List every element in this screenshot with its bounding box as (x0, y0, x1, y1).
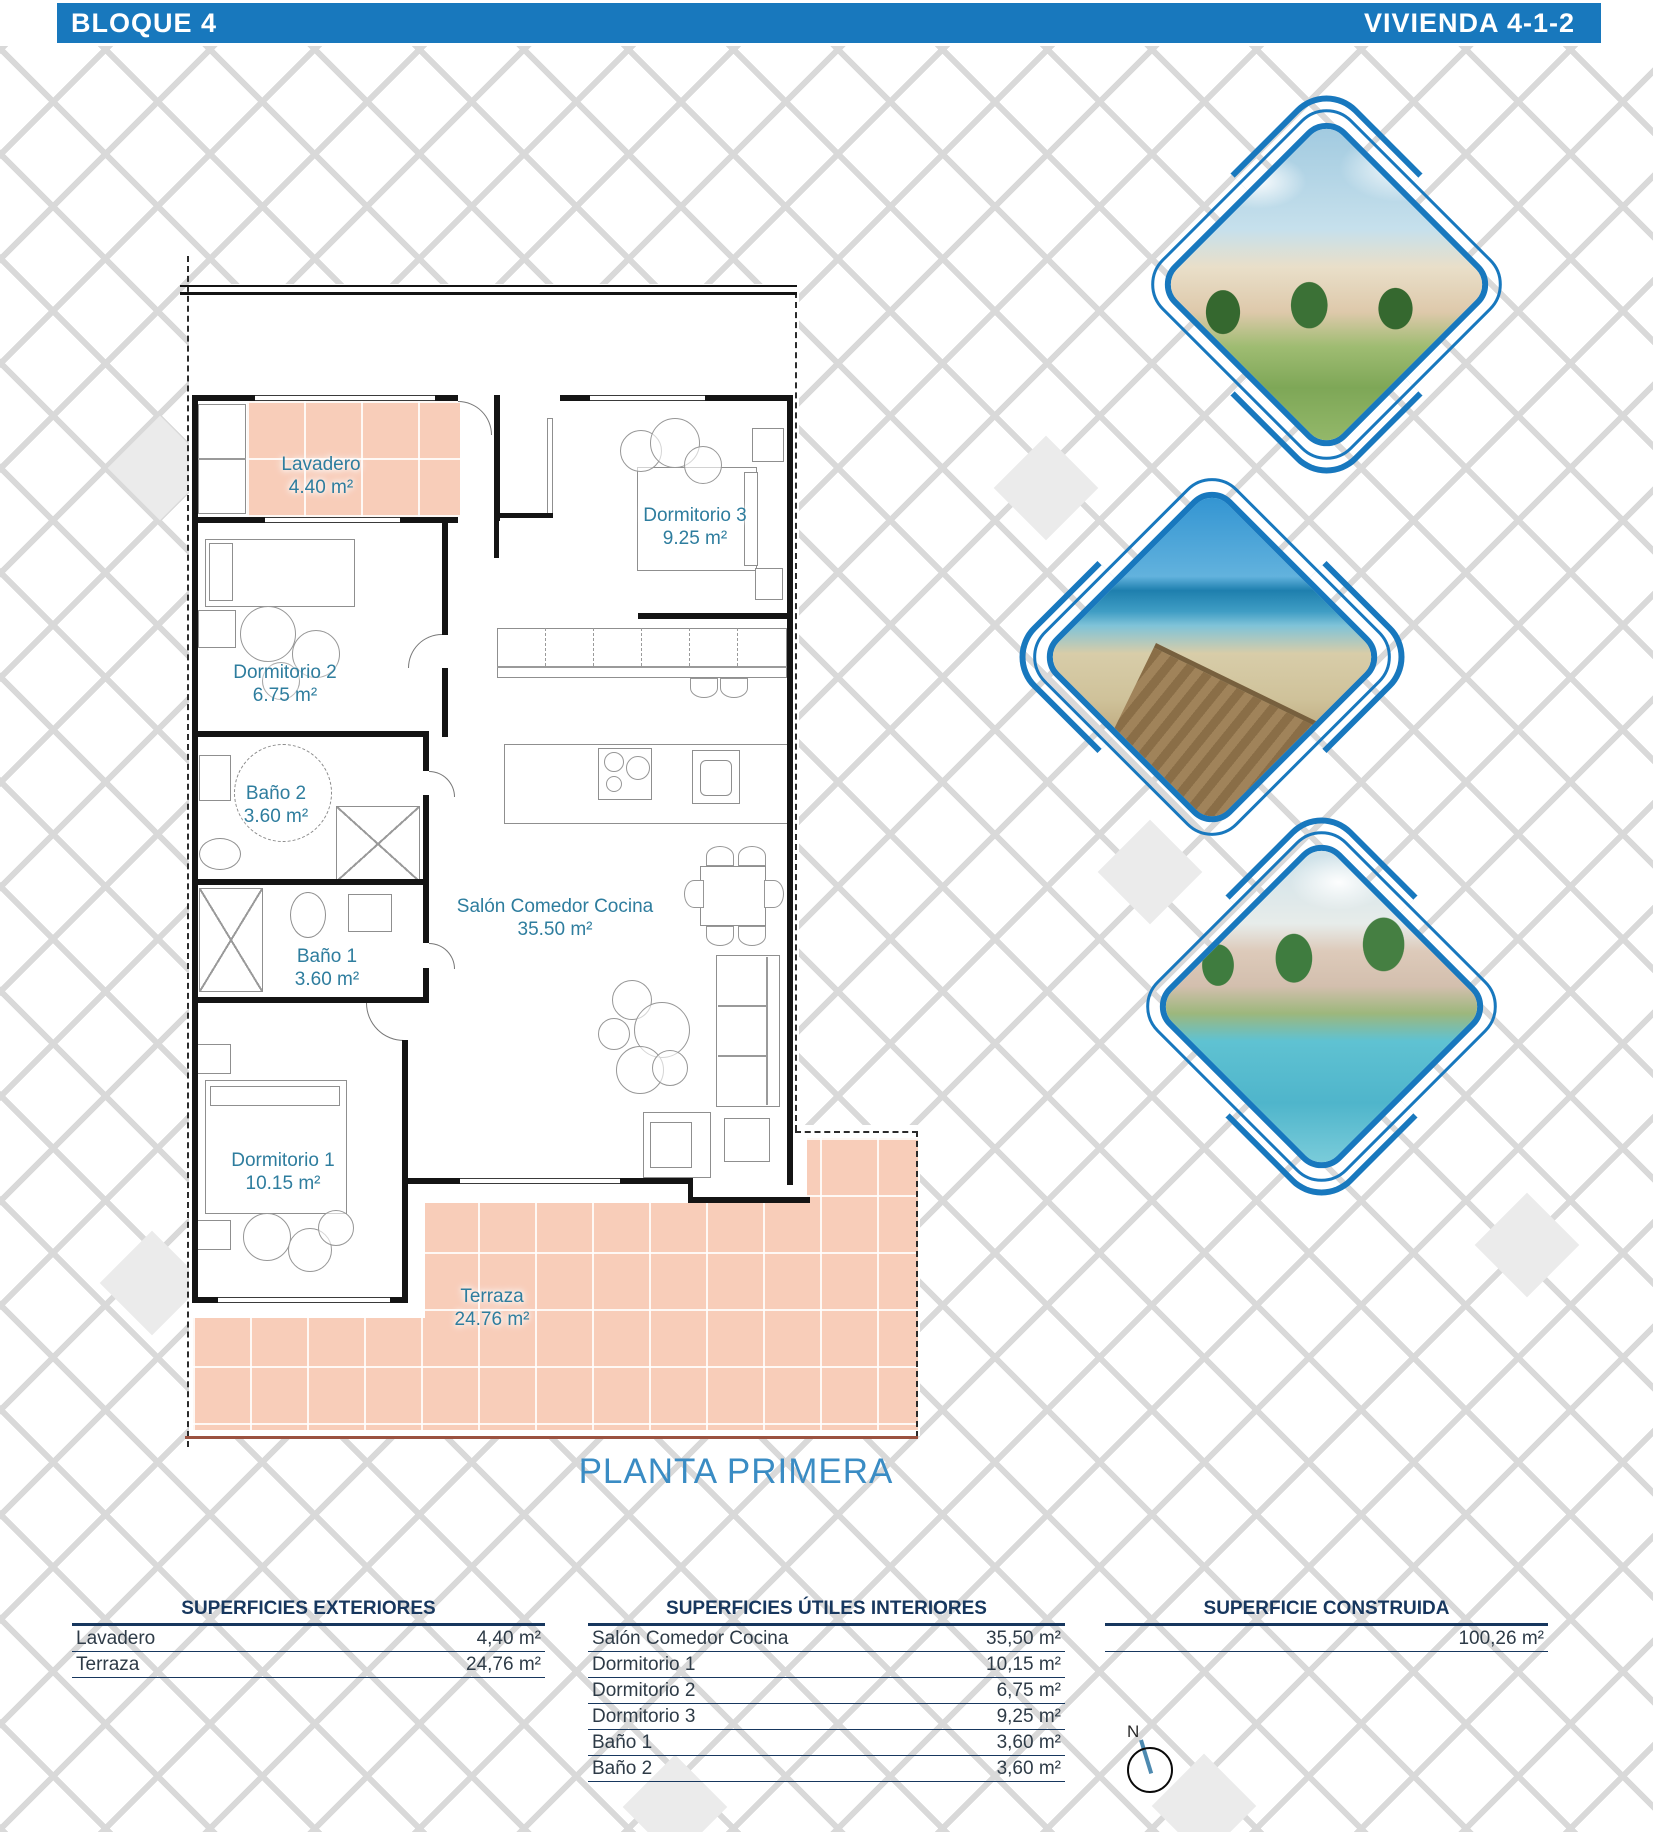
cabinet-divider (737, 628, 738, 666)
hob-burner (604, 752, 624, 772)
armchair (724, 1118, 770, 1162)
sofa (716, 955, 780, 1107)
row-value: 3,60 m² (997, 1732, 1061, 1754)
tv-unit-inner (650, 1122, 692, 1168)
room-name: Baño 2 (244, 782, 308, 805)
table-row: Salón Comedor Cocina 35,50 m² (588, 1626, 1065, 1652)
wall (497, 513, 553, 518)
row-label: Baño 1 (592, 1732, 652, 1754)
row-value: 6,75 m² (997, 1680, 1061, 1702)
room-area: 3.60 m² (244, 805, 308, 828)
wall (180, 292, 797, 295)
kitchen-counter (497, 628, 787, 678)
room-area: 24.76 m² (455, 1308, 530, 1331)
hob-burner (626, 756, 650, 780)
terrace-edge-line (185, 1436, 918, 1439)
room-area: 6.75 m² (233, 684, 336, 707)
room-area: 35.50 m² (457, 918, 653, 941)
room-area: 9.25 m² (643, 527, 746, 550)
furniture-line (766, 957, 768, 1105)
furniture-line (718, 1005, 766, 1007)
chair (243, 1213, 291, 1261)
hob-burner (606, 776, 622, 792)
wall (423, 795, 429, 943)
furniture-line (198, 458, 246, 460)
plant (652, 1050, 688, 1086)
nightstand (752, 428, 784, 462)
room-label-bano1: Baño 1 3.60 m² (295, 945, 359, 991)
room-label-salon: Salón Comedor Cocina 35.50 m² (457, 895, 653, 941)
row-value: 100,26 m² (1458, 1628, 1544, 1650)
block-title: BLOQUE 4 (71, 3, 217, 43)
room-label-terraza: Terraza 24.76 m² (455, 1285, 530, 1331)
window (265, 517, 400, 523)
furniture-line (718, 1055, 766, 1057)
room-name: Salón Comedor Cocina (457, 895, 653, 918)
table-superficies-interiores: SUPERFICIES ÚTILES INTERIORES Salón Come… (588, 1598, 1065, 1782)
table-superficies-exteriores: SUPERFICIES EXTERIORES Lavadero 4,40 m² … (72, 1598, 545, 1678)
row-label: Dormitorio 1 (592, 1654, 695, 1676)
room-name: Dormitorio 1 (231, 1149, 334, 1172)
cabinet-divider (641, 628, 642, 666)
property-line (795, 292, 797, 1131)
wall (787, 395, 793, 1185)
table-row: Baño 1 3,60 m² (588, 1730, 1065, 1756)
shower (199, 888, 263, 992)
nightstand (197, 1220, 231, 1250)
room-name: Baño 1 (295, 945, 359, 968)
table-title: SUPERFICIE CONSTRUIDA (1105, 1598, 1548, 1626)
chair (738, 846, 766, 866)
chair (706, 846, 734, 866)
chair (684, 880, 704, 908)
property-line (916, 1131, 918, 1437)
row-value: 9,25 m² (997, 1706, 1061, 1728)
plan-title: PLANTA PRIMERA (486, 1452, 986, 1492)
property-line (795, 1131, 918, 1133)
window (218, 1297, 390, 1303)
toilet (199, 838, 241, 870)
sink (199, 755, 231, 801)
stool (690, 678, 718, 698)
room-label-lavadero: Lavadero 4.40 m² (281, 453, 360, 499)
wall (192, 879, 429, 885)
wall (638, 613, 788, 619)
wall (192, 395, 198, 523)
desk (198, 610, 236, 648)
closet (547, 418, 553, 518)
wall (494, 395, 500, 521)
wall (192, 997, 429, 1003)
kitchen-sink-basin (700, 760, 732, 796)
room-name: Terraza (455, 1285, 530, 1308)
room-name: Lavadero (281, 453, 360, 476)
window (255, 395, 435, 401)
nightstand (197, 1044, 231, 1074)
table-title: SUPERFICIES EXTERIORES (72, 1598, 545, 1626)
cabinet-divider (593, 628, 594, 666)
furniture-line (497, 666, 787, 668)
chair (240, 606, 296, 662)
row-label: Lavadero (76, 1628, 155, 1650)
shower (336, 806, 420, 882)
header-bar: BLOQUE 4 VIVIENDA 4-1-2 (57, 3, 1601, 43)
cabinet-divider (545, 628, 546, 666)
room-name: Dormitorio 3 (643, 504, 746, 527)
cabinet-divider (689, 628, 690, 666)
unit-title: VIVIENDA 4-1-2 (1364, 3, 1575, 43)
toilet (290, 892, 326, 938)
room-label-bano2: Baño 2 3.60 m² (244, 782, 308, 828)
pillow (209, 543, 233, 601)
row-value: 35,50 m² (986, 1628, 1061, 1650)
brochure-page: BLOQUE 4 VIVIENDA 4-1-2 (0, 0, 1653, 1832)
wall (442, 668, 448, 737)
chair (764, 880, 784, 908)
table-row: Dormitorio 1 10,15 m² (588, 1652, 1065, 1678)
nightstand (755, 568, 783, 600)
property-line (187, 256, 189, 1447)
table-superficie-construida: SUPERFICIE CONSTRUIDA 100,26 m² (1105, 1598, 1548, 1652)
wall (688, 1197, 810, 1203)
row-label: Dormitorio 2 (592, 1680, 695, 1702)
table-row: 100,26 m² (1105, 1626, 1548, 1652)
window (460, 1178, 620, 1184)
sink (348, 894, 392, 932)
table-row: Baño 2 3,60 m² (588, 1756, 1065, 1782)
plant (684, 446, 722, 484)
wall (494, 518, 499, 558)
chair (738, 926, 766, 946)
row-label: Terraza (76, 1654, 139, 1676)
row-label: Salón Comedor Cocina (592, 1628, 788, 1650)
window (590, 395, 705, 401)
wall (423, 731, 429, 771)
room-area: 4.40 m² (281, 476, 360, 499)
wall (402, 1040, 408, 1300)
stool (720, 678, 748, 698)
row-value: 3,60 m² (997, 1758, 1061, 1780)
room-name: Dormitorio 2 (233, 661, 336, 684)
table-row: Dormitorio 2 6,75 m² (588, 1678, 1065, 1704)
room-label-dormitorio2: Dormitorio 2 6.75 m² (233, 661, 336, 707)
compass: N (1115, 1722, 1195, 1806)
chair (706, 926, 734, 946)
row-value: 10,15 m² (986, 1654, 1061, 1676)
wall (180, 285, 797, 287)
plant (598, 1018, 630, 1050)
north-label: N (1127, 1722, 1139, 1742)
room-label-dormitorio1: Dormitorio 1 10.15 m² (231, 1149, 334, 1195)
room-area: 10.15 m² (231, 1172, 334, 1195)
row-label: Dormitorio 3 (592, 1706, 695, 1728)
room-area: 3.60 m² (295, 968, 359, 991)
wall (192, 517, 198, 1303)
table-title: SUPERFICIES ÚTILES INTERIORES (588, 1598, 1065, 1626)
row-label: Baño 2 (592, 1758, 652, 1780)
compass-circle (1127, 1747, 1173, 1793)
table-row: Dormitorio 3 9,25 m² (588, 1704, 1065, 1730)
wall (192, 731, 429, 737)
row-value: 4,40 m² (477, 1628, 541, 1650)
table-row: Terraza 24,76 m² (72, 1652, 545, 1678)
table-row: Lavadero 4,40 m² (72, 1626, 545, 1652)
row-value: 24,76 m² (466, 1654, 541, 1676)
room-label-dormitorio3: Dormitorio 3 9.25 m² (643, 504, 746, 550)
pillow (210, 1086, 340, 1106)
chair (318, 1210, 354, 1246)
dining-table (700, 866, 766, 926)
wall (442, 517, 448, 635)
